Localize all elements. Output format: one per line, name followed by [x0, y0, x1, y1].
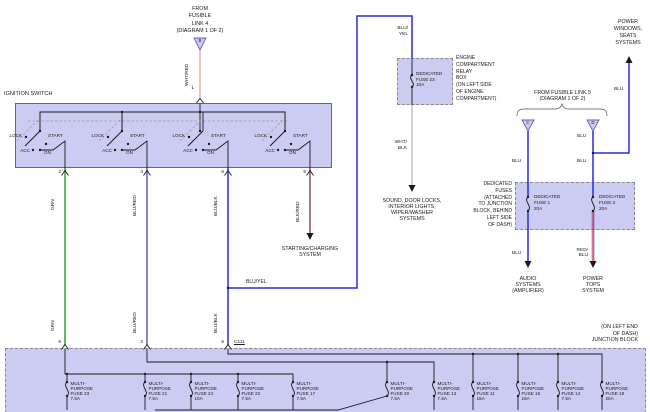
sound-systems-label: SOUND, DOOR LOCKS, INTERIOR LIGHTS, WIPE… — [372, 198, 452, 222]
fuse-label-10: MULTI- PURPOSE FUSE 18 20A — [606, 381, 628, 402]
wire-label-red-blu: RED/ BLU — [564, 248, 588, 259]
ignition-switch-title: IGNITION SWITCH — [4, 91, 52, 97]
switch-label-lock-0: LOCK — [2, 133, 22, 139]
switch-label-acc-0: ACC — [16, 148, 30, 154]
junction-block-note: (ON LEFT END OF DASH) JUNCTION BLOCK — [576, 324, 638, 344]
dedicated-fuse3-label: DEDICATED FUSE 3 20A — [599, 194, 625, 213]
junction-entry-1: 2 — [135, 340, 143, 346]
switch-label-on-2: ON — [207, 150, 219, 156]
junction-entry-0: 6 — [53, 340, 61, 346]
wire-label-blk-red: BLK/RED — [296, 201, 302, 222]
switch-label-start-2: START — [211, 133, 235, 139]
switch-label-lock-3: LOCK — [247, 133, 267, 139]
fuse-label-3: MULTI- PURPOSE FUSE 22 7.5A — [242, 381, 264, 402]
wire-label-grn: GRN — [51, 199, 57, 210]
switch-label-acc-3: ACC — [261, 148, 275, 154]
switch-label-acc-2: ACC — [179, 148, 193, 154]
wire-label-blu-yel-v: BLU/ YEL — [385, 26, 408, 37]
wire-blu-branch — [593, 63, 629, 153]
link5-brace — [517, 104, 607, 116]
switch-label-start-3: START — [293, 133, 317, 139]
wire-label-blu-d1: BLU — [577, 134, 586, 140]
fusible-link4-label: FROM FUSIBLE LINK 4 (DIAGRAM 1 OF 2) — [168, 6, 232, 35]
pin-1-label: 1 — [186, 86, 194, 92]
switch-label-start-1: START — [130, 133, 154, 139]
wire-label-blu-blk-2: BLU/BLK — [214, 313, 220, 333]
fusible-link5-label: FROM FUSIBLE LINK 5 (DIAGRAM 1 OF 2) — [512, 90, 613, 103]
relay-box-note: ENGINE COMPARTMENT RELAY BOX (ON LEFT SI… — [456, 55, 496, 103]
wire-label-grn-2: GRN — [51, 320, 57, 331]
wire-label-blu-red: BLU/RED — [133, 195, 139, 216]
connector-c-label: C — [522, 121, 534, 126]
fuse-label-0: MULTI- PURPOSE FUSE 23 7.5A — [71, 381, 93, 402]
switch-label-on-3: ON — [289, 150, 301, 156]
switch-label-on-0: ON — [44, 150, 56, 156]
wire-label-wht-red: WHT/RED — [185, 64, 191, 86]
ignition-pin-0: 2 — [53, 170, 61, 176]
switch-label-lock-2: LOCK — [165, 133, 185, 139]
junction-entry-2: 5 — [216, 340, 224, 346]
fuse-label-6: MULTI- PURPOSE FUSE 13 7.5A — [438, 381, 460, 402]
fuse-label-1: MULTI- PURPOSE FUSE 21 7.5A — [149, 381, 171, 402]
fuse-label-8: MULTI- PURPOSE FUSE 16 15A — [522, 381, 544, 402]
connector-d-label: D — [587, 121, 599, 126]
dedicated-fuses-note: DEDICATED FUSES (ATTACHED TO JUNCTION BL… — [450, 181, 512, 229]
ignition-pin-2: 6 — [216, 170, 224, 176]
relay-box-fuse-label: DEDICATED FUSE 23 10A — [416, 71, 442, 88]
ignition-pin-3: 5 — [298, 170, 306, 176]
wire-label-blu-yel: BLU/YEL — [246, 279, 267, 285]
fuse-label-7: MULTI- PURPOSE FUSE 11 15A — [477, 381, 499, 402]
wire-label-blu-red-2: BLU/RED — [133, 312, 139, 333]
power-windows-label: POWER WINDOWS, SEATS SYSTEMS — [599, 19, 650, 47]
audio-systems-label: AUDIO SYSTEMS (AMPLIFIER) — [498, 276, 558, 294]
fuse-label-5: MULTI- PURPOSE FUSE 20 7.5A — [391, 381, 413, 402]
wire-label-wht-blk: WHT/ BLK — [384, 140, 407, 151]
wire-label-blu-audio: BLU — [512, 251, 521, 257]
wire-label-blu-c: BLU — [512, 159, 521, 165]
switch-label-lock-1: LOCK — [84, 133, 104, 139]
fuse-label-4: MULTI- PURPOSE FUSE 17 7.5A — [297, 381, 319, 402]
switch-label-start-0: START — [48, 133, 72, 139]
switch-label-on-1: ON — [126, 150, 138, 156]
wire-label-blu-d2: BLU — [577, 159, 586, 165]
connector-c111-label: C111 — [234, 340, 245, 346]
wire-label-blu-riser: BLU — [614, 87, 623, 93]
dedicated-fuse1-label: DEDICATED FUSE 1 20A — [534, 194, 560, 213]
connector-b-label: B — [194, 39, 206, 44]
fuse-label-2: MULTI- PURPOSE FUSE 24 10A — [195, 381, 217, 402]
starting-charging-label: STARTING/CHARGING SYSTEM — [275, 246, 345, 258]
power-tops-label: POWER TOPS SYSTEM — [563, 276, 623, 294]
wiring-diagram: FROM FUSIBLE LINK 4 (DIAGRAM 1 OF 2) B W… — [0, 0, 650, 412]
fuse-label-9: MULTI- PURPOSE FUSE 14 7.5A — [562, 381, 584, 402]
ignition-pin-1: 4 — [135, 170, 143, 176]
switch-label-acc-1: ACC — [98, 148, 112, 154]
wire-label-blu-blk: BLU/BLK — [214, 196, 220, 216]
